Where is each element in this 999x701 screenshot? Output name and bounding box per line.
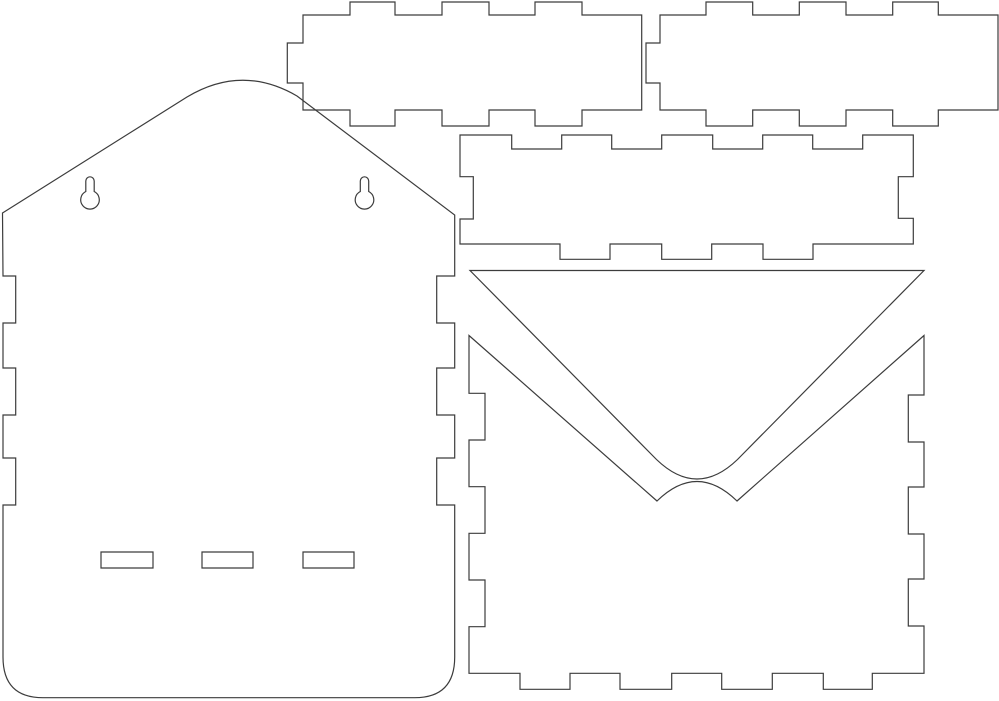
keyhole-hanger-left — [81, 177, 100, 209]
side-wall-piece-left — [287, 2, 641, 126]
drawing-area — [0, 0, 999, 701]
laser-cut-template-canvas — [0, 0, 999, 701]
bottom-slot-center — [202, 552, 253, 568]
bottom-slot-right — [303, 552, 354, 568]
keyhole-hanger-right — [355, 177, 374, 209]
back-panel-outline — [3, 80, 455, 697]
flap-triangle-piece — [470, 271, 924, 480]
side-wall-piece-right — [646, 2, 998, 126]
envelope-front-piece — [469, 336, 924, 690]
front-rail-piece — [460, 135, 913, 259]
bottom-slot-left — [101, 552, 153, 568]
